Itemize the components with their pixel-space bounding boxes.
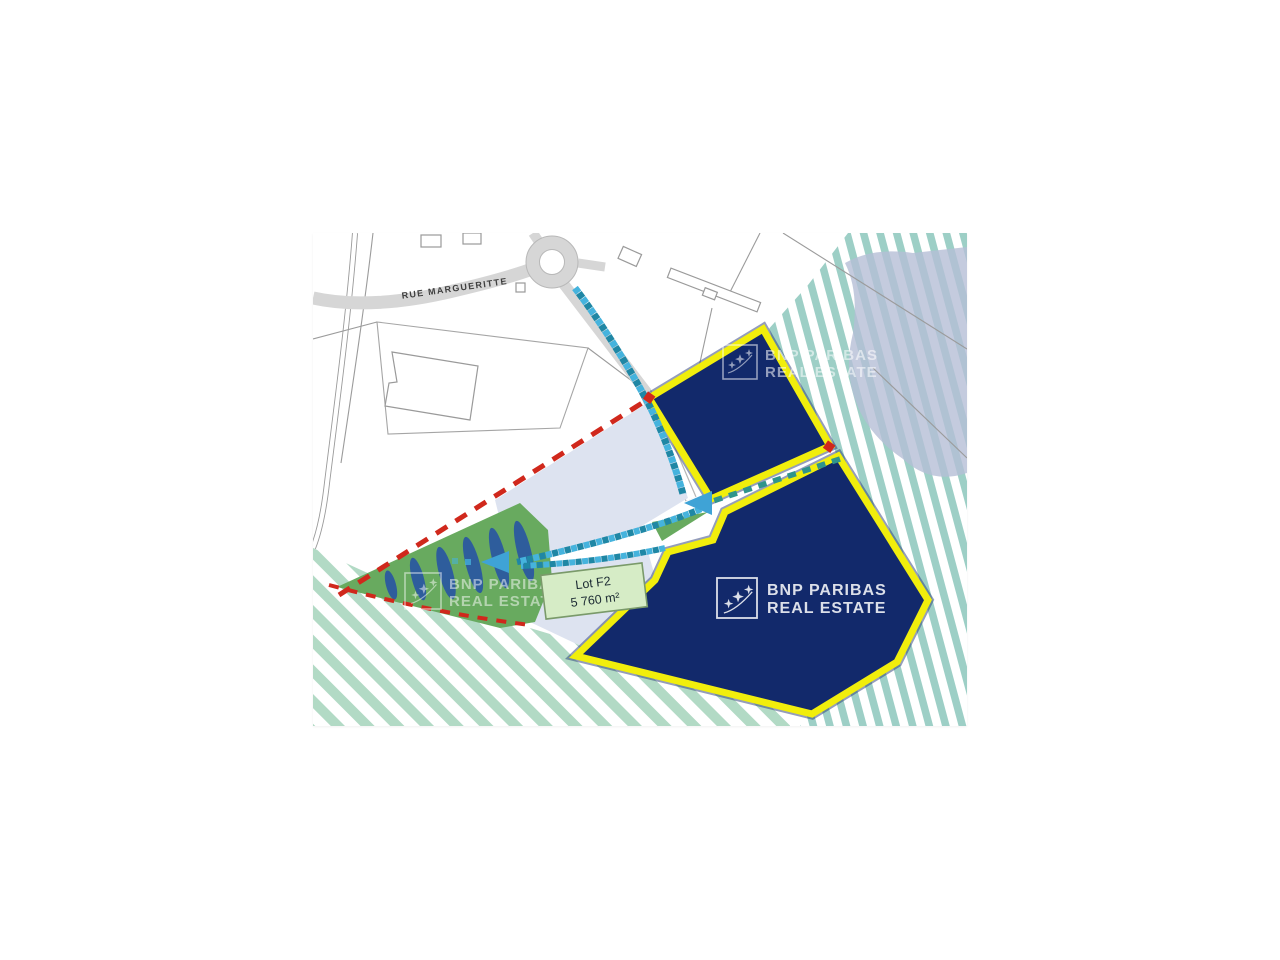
watermark-text: BNP PARIBAS <box>767 582 887 599</box>
plan-map: RUE MARGUERITTE <box>313 233 967 726</box>
building-footprint <box>463 233 481 244</box>
roundabout-center <box>540 250 565 275</box>
building-footprint <box>516 283 525 292</box>
fading-dot <box>452 558 458 564</box>
watermark-text: REAL ESTATE <box>765 364 878 381</box>
fading-dot <box>465 559 471 565</box>
building-footprint <box>421 235 441 247</box>
page: RUE MARGUERITTE <box>0 0 1280 960</box>
watermark-text: BNP PARIBAS <box>765 347 878 364</box>
watermark-text: REAL ESTATE <box>767 600 886 617</box>
road-stub <box>578 263 605 267</box>
